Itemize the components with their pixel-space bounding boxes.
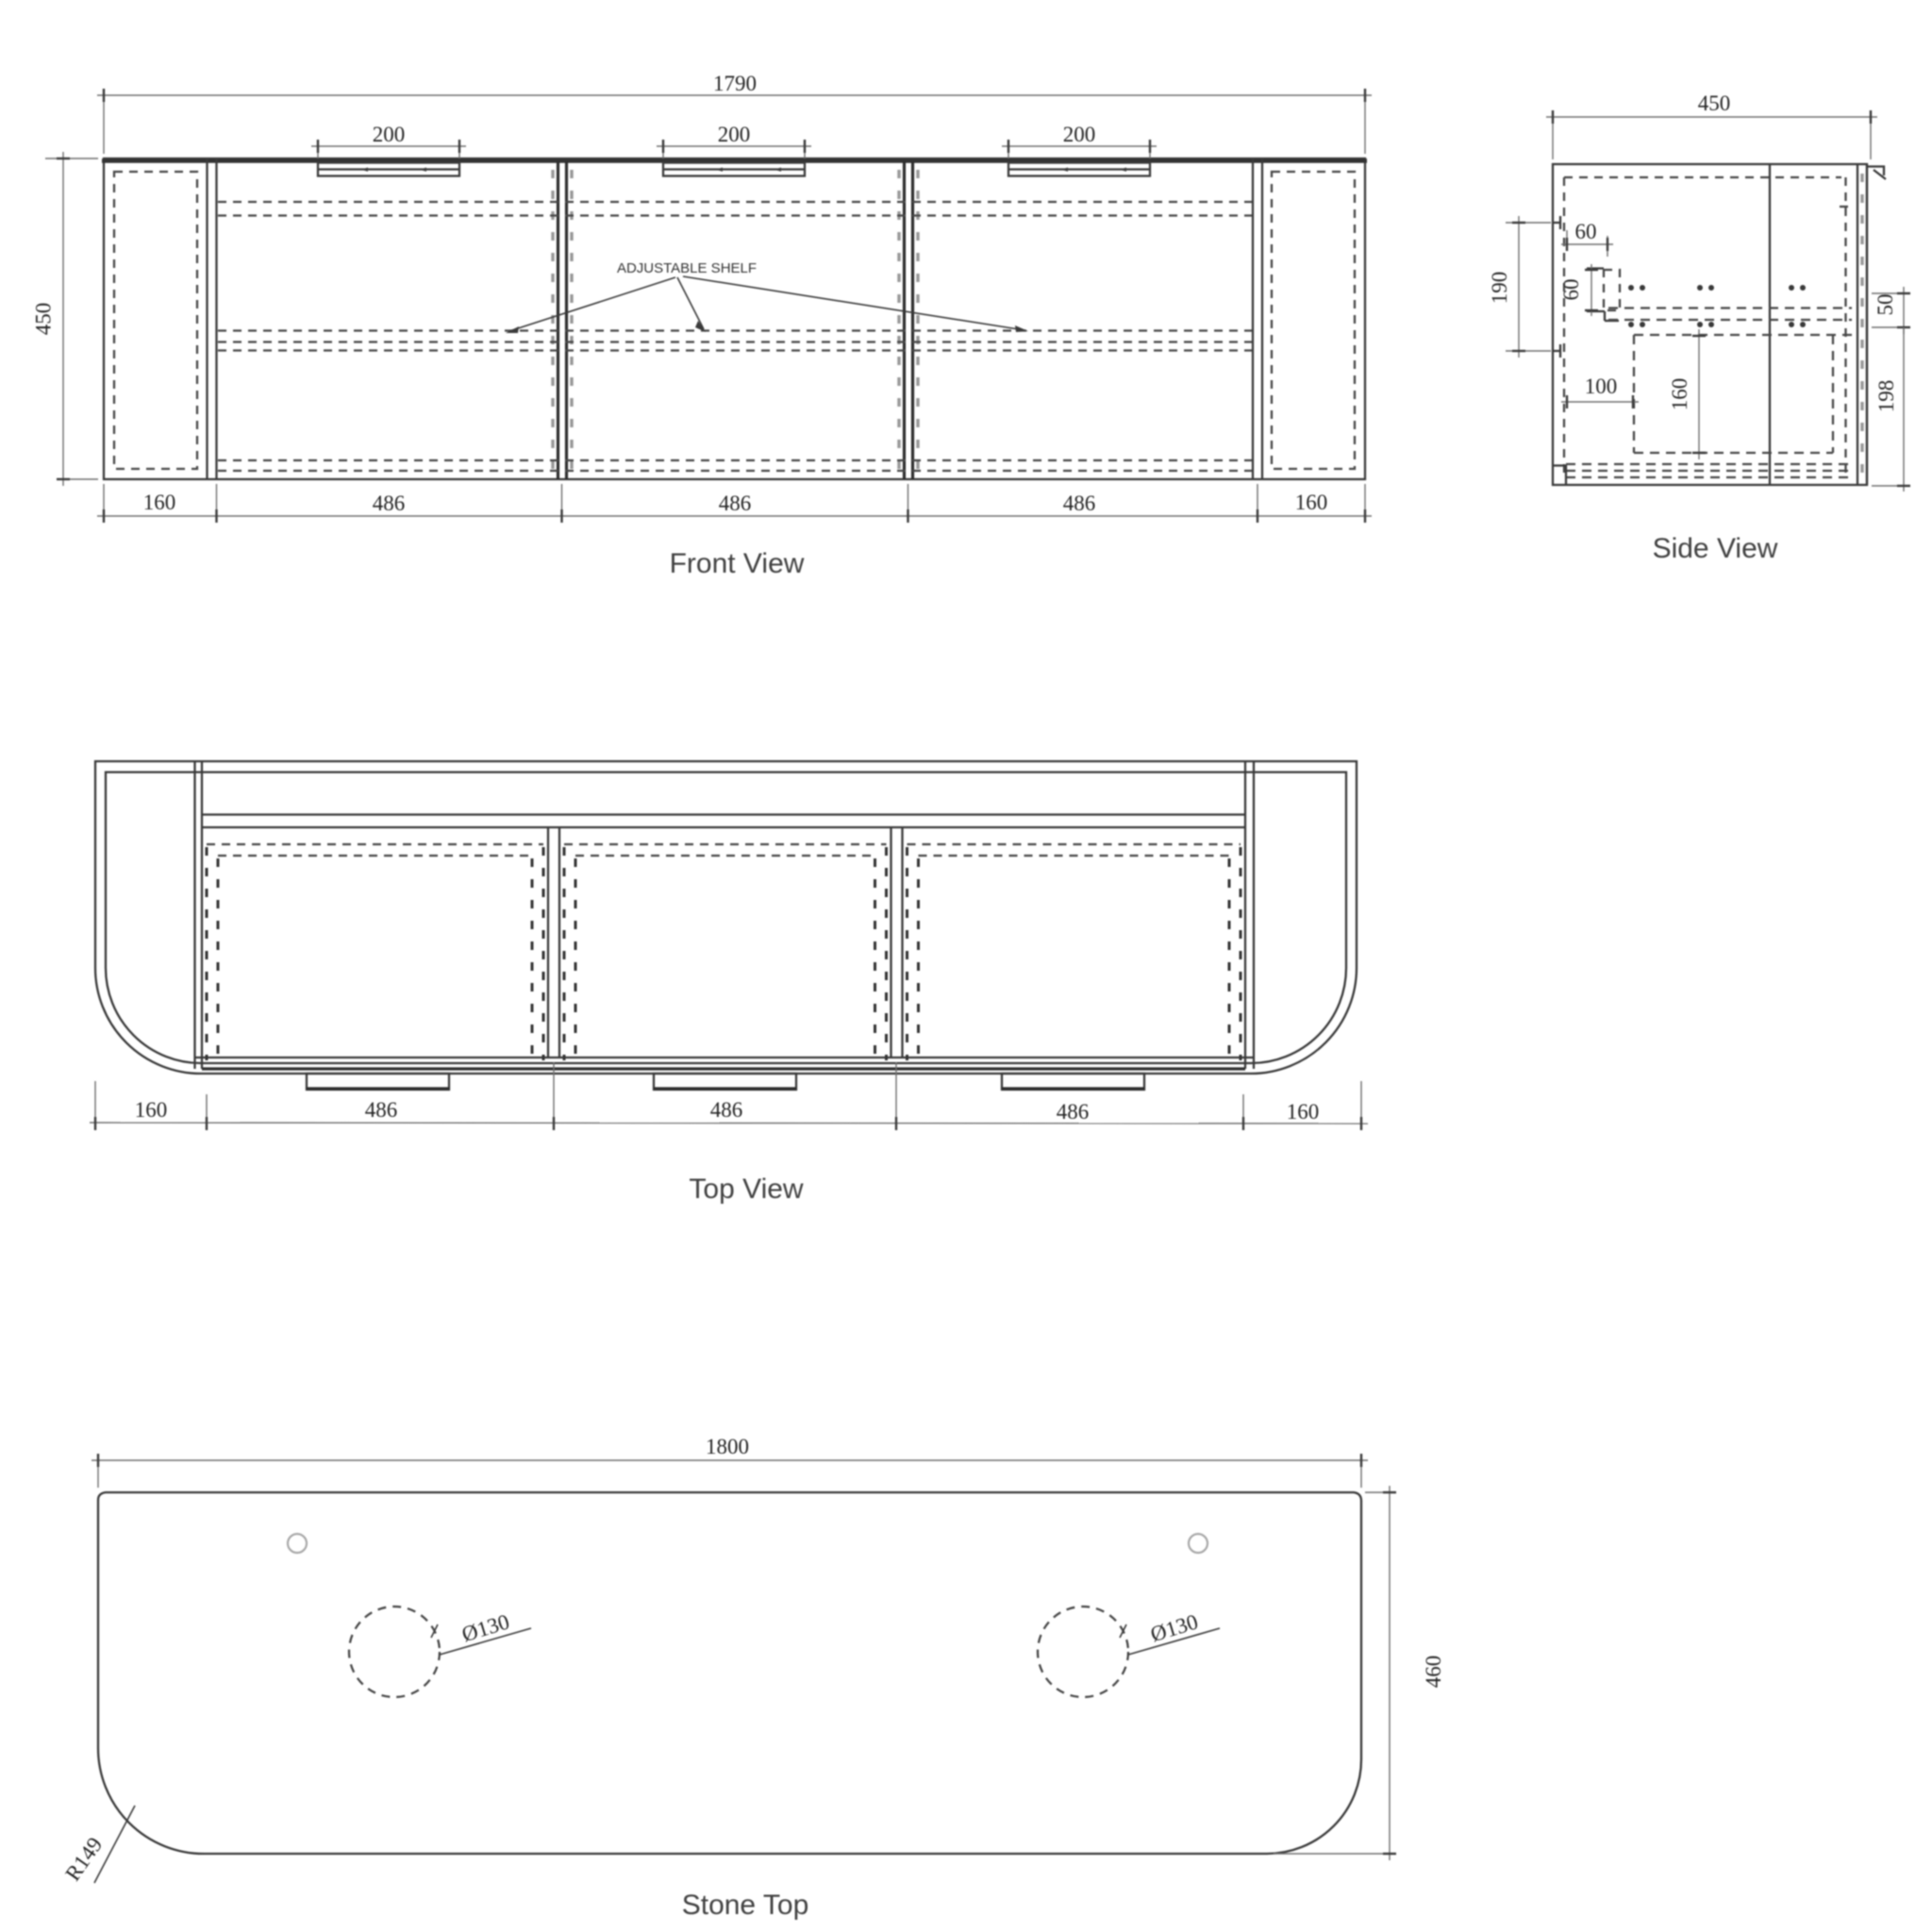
svg-text:200: 200	[373, 123, 406, 146]
svg-text:486: 486	[710, 1098, 743, 1122]
svg-text:486: 486	[373, 491, 406, 515]
svg-text:160: 160	[1668, 378, 1691, 411]
svg-text:Top View: Top View	[689, 1174, 804, 1205]
svg-text:486: 486	[1057, 1100, 1090, 1124]
svg-text:R149: R149	[60, 1833, 107, 1885]
svg-text:1790: 1790	[713, 72, 757, 95]
svg-text:190: 190	[1488, 272, 1511, 305]
svg-text:198: 198	[1874, 380, 1898, 413]
svg-text:50: 50	[1874, 294, 1897, 316]
svg-text:450: 450	[1698, 92, 1731, 115]
svg-text:160: 160	[135, 1098, 168, 1122]
svg-text:Stone Top: Stone Top	[682, 1890, 809, 1921]
svg-text:450: 450	[32, 303, 56, 336]
svg-text:ADJUSTABLE SHELF: ADJUSTABLE SHELF	[617, 260, 757, 276]
svg-text:60: 60	[1575, 220, 1597, 243]
svg-text:Side View: Side View	[1653, 533, 1778, 564]
svg-text:1800: 1800	[706, 1435, 749, 1458]
svg-text:486: 486	[365, 1098, 398, 1122]
svg-text:100: 100	[1585, 375, 1618, 398]
svg-text:Front View: Front View	[670, 548, 805, 579]
svg-text:486: 486	[719, 491, 752, 515]
svg-text:200: 200	[1063, 123, 1096, 146]
svg-text:160: 160	[1295, 491, 1328, 514]
svg-text:486: 486	[1063, 491, 1096, 515]
svg-text:160: 160	[143, 491, 176, 514]
svg-text:460: 460	[1422, 1656, 1445, 1689]
svg-text:60: 60	[1559, 279, 1583, 301]
svg-text:200: 200	[718, 123, 751, 146]
svg-text:160: 160	[1287, 1100, 1320, 1124]
